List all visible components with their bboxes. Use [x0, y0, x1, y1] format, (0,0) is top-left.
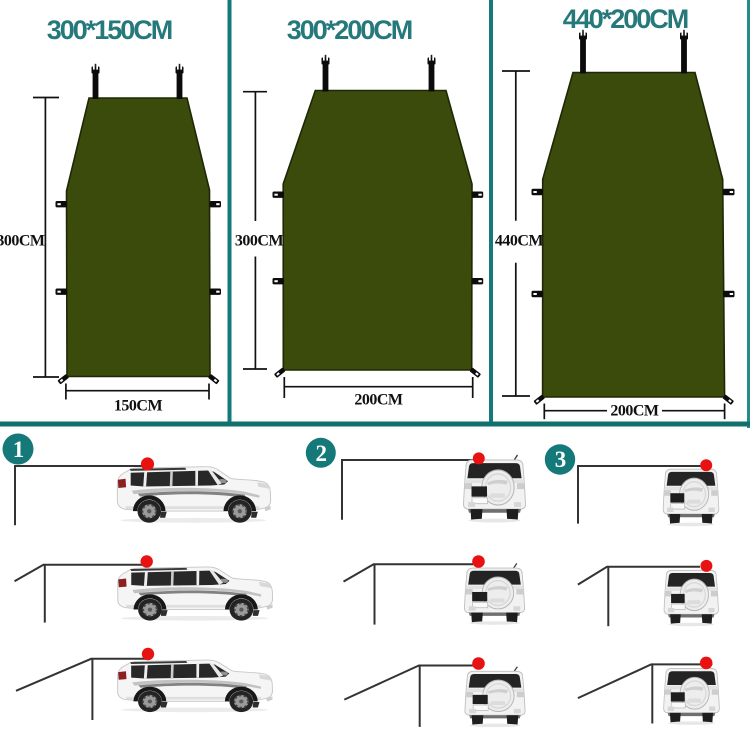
- svg-text:200CM: 200CM: [354, 391, 403, 408]
- svg-text:440*200CM: 440*200CM: [563, 4, 688, 34]
- svg-text:200CM: 200CM: [610, 403, 659, 420]
- svg-text:300*150CM: 300*150CM: [47, 15, 172, 45]
- svg-text:300CM: 300CM: [235, 233, 284, 250]
- svg-text:1: 1: [13, 437, 25, 462]
- svg-text:2: 2: [316, 441, 328, 466]
- svg-text:3: 3: [555, 447, 567, 472]
- svg-text:300*200CM: 300*200CM: [287, 15, 412, 45]
- svg-text:150CM: 150CM: [114, 398, 163, 415]
- svg-text:440CM: 440CM: [495, 233, 544, 250]
- svg-text:300CM: 300CM: [0, 233, 45, 250]
